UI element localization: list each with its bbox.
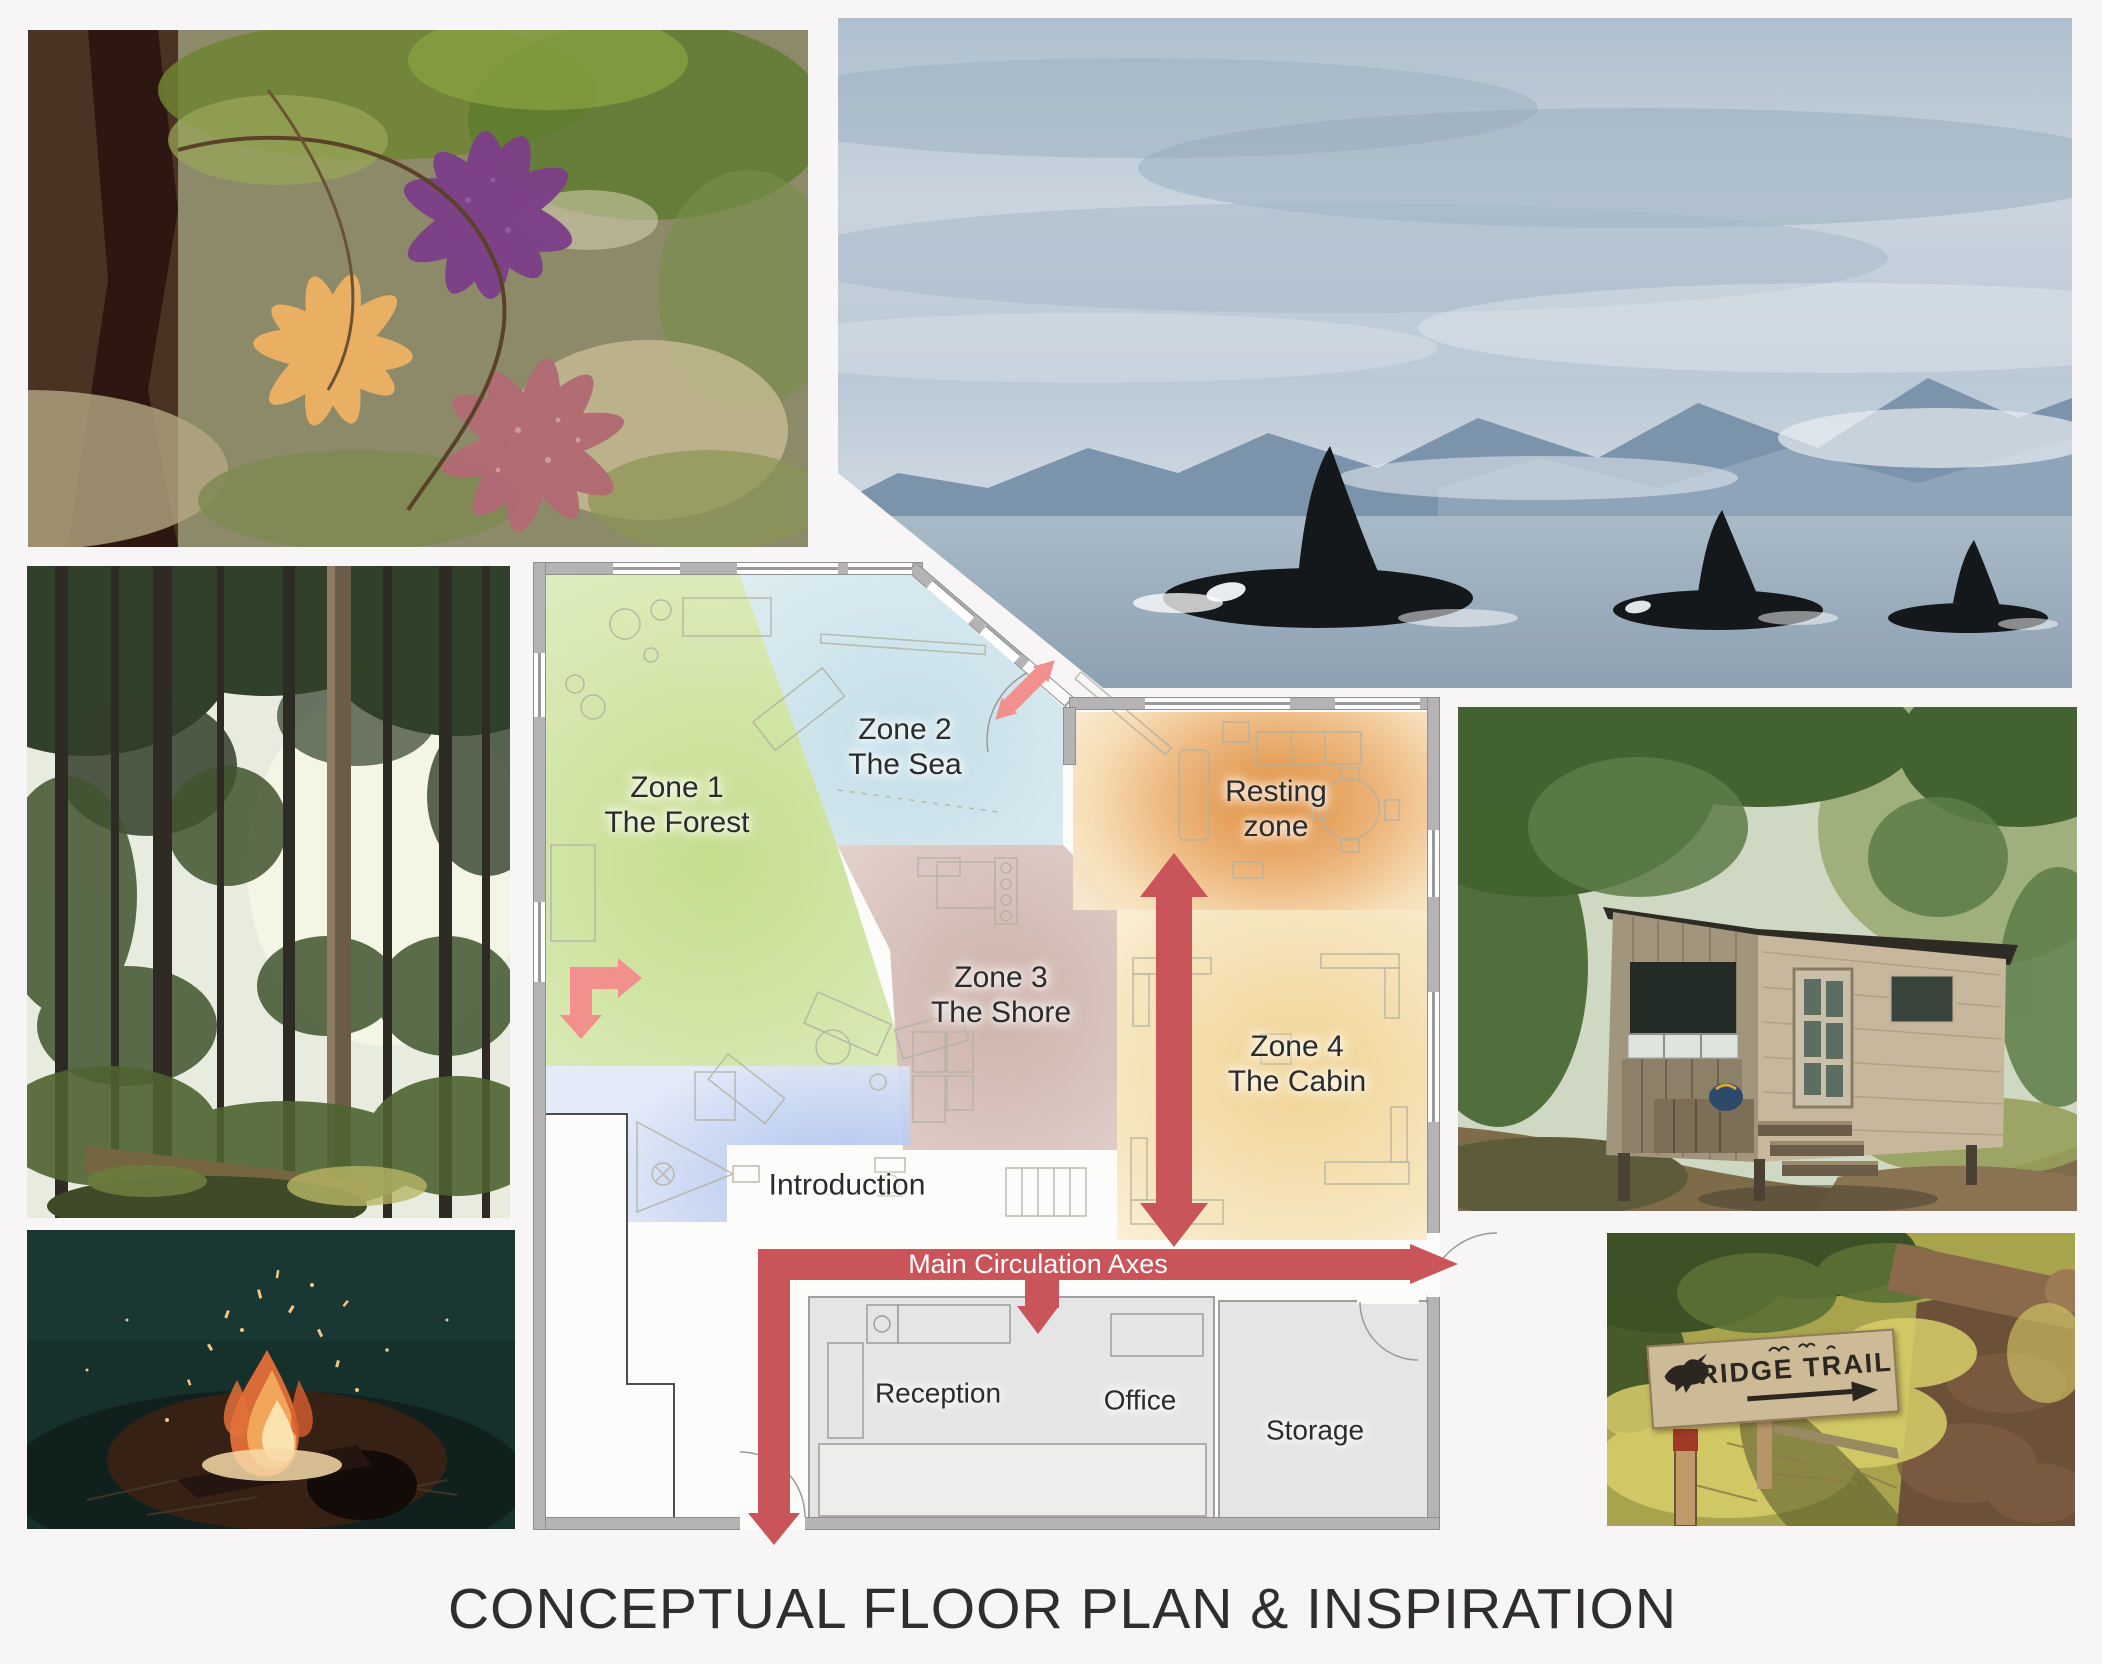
reception-label: Reception — [875, 1376, 1001, 1411]
circulation-arrowhead-down — [1140, 1203, 1208, 1247]
circulation-exit-shaft — [758, 1249, 790, 1515]
window — [613, 562, 680, 575]
resting-zone-label: Resting zone — [1225, 774, 1327, 844]
forest-photo — [27, 566, 510, 1218]
circulation-vertical-axis-shaft — [1156, 897, 1192, 1203]
window — [533, 902, 546, 982]
window — [737, 562, 838, 575]
window — [1427, 830, 1440, 897]
wall-stub-below-diagonal — [1063, 707, 1076, 765]
partition-line — [626, 1113, 628, 1385]
zone-3-label: Zone 3 The Shore — [931, 960, 1071, 1030]
moodboard-page: RIDGE TRAIL — [0, 0, 2102, 1664]
window — [1335, 697, 1420, 710]
zone-1-label: Zone 1 The Forest — [604, 770, 749, 840]
ridge-trail-sign-photo: RIDGE TRAIL — [1607, 1233, 2075, 1526]
campfire-photo — [27, 1230, 515, 1529]
trail-sign: RIDGE TRAIL — [1646, 1328, 1899, 1429]
window — [533, 653, 546, 717]
floor-plan: Main Circulation Axes Zone 1 The Forest … — [533, 562, 1440, 1530]
introduction-label: Introduction — [769, 1168, 926, 1203]
partition-line — [673, 1383, 675, 1519]
partition-line — [546, 1113, 626, 1115]
starfish-photo — [28, 30, 808, 547]
circulation-arrowhead-right — [1410, 1244, 1458, 1284]
circulation-reception-stub — [1025, 1280, 1059, 1308]
window — [1427, 992, 1440, 1122]
window — [1145, 697, 1290, 710]
furniture-overlay — [533, 562, 1553, 1552]
storage-label: Storage — [1266, 1413, 1364, 1448]
window — [848, 562, 912, 575]
office-label: Office — [1104, 1383, 1177, 1418]
zone-2-label: Zone 2 The Sea — [848, 712, 961, 782]
circulation-arrowhead-up — [1140, 853, 1208, 897]
circulation-axes-label: Main Circulation Axes — [853, 1249, 1223, 1280]
circulation-arrowhead-reception — [1017, 1306, 1059, 1334]
zone-4-label: Zone 4 The Cabin — [1228, 1029, 1366, 1099]
circulation-arrowhead-exit — [748, 1513, 800, 1545]
page-title: CONCEPTUAL FLOOR PLAN & INSPIRATION — [448, 1576, 1518, 1642]
wall-bottom — [533, 1517, 1440, 1530]
partition-line — [626, 1383, 673, 1385]
